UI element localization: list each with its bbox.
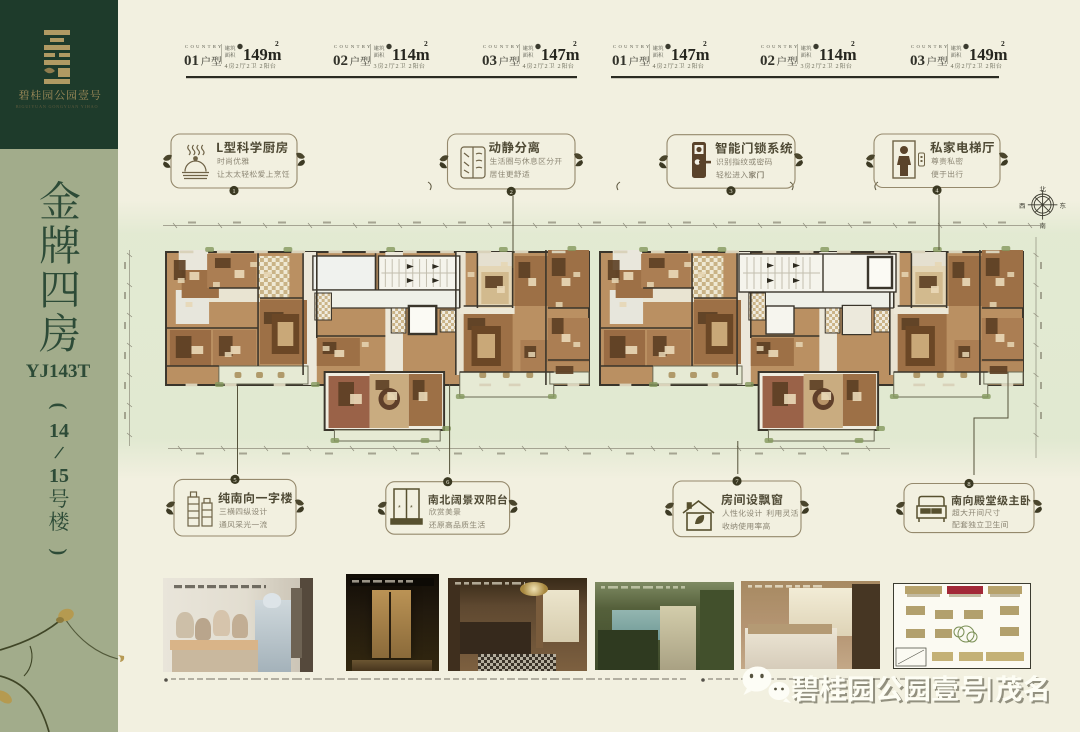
svg-text:2: 2	[664, 63, 667, 70]
svg-text:*: *	[410, 505, 413, 512]
svg-text:2: 2	[424, 39, 428, 48]
svg-text:BIGUIYUAN GONGYUAN YIHAO: BIGUIYUAN GONGYUAN YIHAO	[16, 104, 99, 109]
svg-text:(: (	[48, 403, 70, 410]
svg-text:COUNTRY: COUNTRY	[185, 44, 224, 49]
svg-text:COUNTRY: COUNTRY	[911, 44, 950, 49]
svg-text:COUNTRY: COUNTRY	[613, 44, 652, 49]
svg-text:2: 2	[973, 63, 976, 70]
svg-text:03: 03	[482, 53, 497, 69]
svg-text:2: 2	[545, 63, 548, 70]
svg-text:2: 2	[534, 63, 537, 70]
svg-text:1: 1	[232, 188, 235, 195]
svg-text:2: 2	[823, 63, 826, 70]
svg-text:14: 14	[49, 420, 69, 442]
svg-text:2: 2	[836, 63, 839, 70]
svg-text:YJ143T: YJ143T	[26, 361, 91, 382]
svg-text:2: 2	[396, 63, 399, 70]
svg-text:02: 02	[760, 53, 775, 69]
svg-text:02: 02	[333, 53, 348, 69]
svg-text:2: 2	[962, 63, 965, 70]
svg-text:2: 2	[986, 63, 989, 70]
svg-text:2: 2	[688, 63, 691, 70]
svg-text:2: 2	[558, 63, 561, 70]
svg-text:2: 2	[236, 63, 239, 70]
svg-text:8: 8	[967, 481, 970, 488]
svg-text:2: 2	[1001, 39, 1005, 48]
svg-text:2: 2	[385, 63, 388, 70]
svg-text:2: 2	[510, 189, 513, 196]
svg-text:2: 2	[247, 63, 250, 70]
svg-text:2: 2	[851, 39, 855, 48]
svg-text:4: 4	[951, 63, 954, 70]
svg-text:*: *	[398, 505, 401, 512]
svg-text:4: 4	[653, 63, 656, 70]
svg-text:15: 15	[49, 465, 69, 487]
svg-text:3: 3	[801, 63, 804, 70]
svg-text:COUNTRY: COUNTRY	[761, 44, 800, 49]
svg-text:): )	[48, 549, 70, 556]
svg-text:2: 2	[260, 63, 263, 70]
svg-text:01: 01	[184, 53, 199, 69]
svg-text:2: 2	[812, 63, 815, 70]
svg-text:COUNTRY: COUNTRY	[483, 44, 522, 49]
svg-text:03: 03	[910, 53, 925, 69]
svg-text:01: 01	[612, 53, 627, 69]
svg-text:4: 4	[225, 63, 228, 70]
svg-text:2: 2	[703, 39, 707, 48]
svg-text:2: 2	[409, 63, 412, 70]
svg-text:2: 2	[573, 39, 577, 48]
svg-text:5: 5	[233, 477, 236, 484]
svg-text:3: 3	[374, 63, 377, 70]
svg-text:2: 2	[675, 63, 678, 70]
svg-text:/: /	[52, 441, 65, 464]
svg-text:COUNTRY: COUNTRY	[334, 44, 373, 49]
svg-text:2: 2	[275, 39, 279, 48]
svg-text:3: 3	[729, 188, 732, 195]
svg-text:4: 4	[523, 63, 526, 70]
